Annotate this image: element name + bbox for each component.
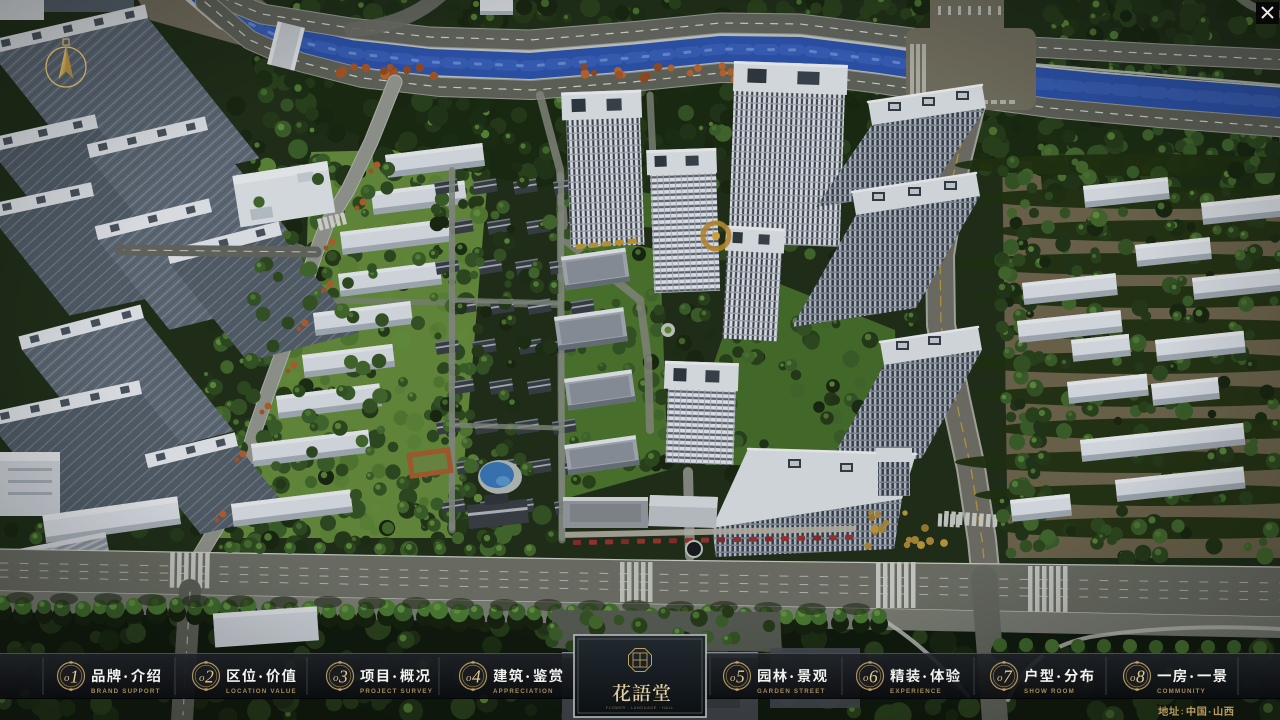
svg-text:4: 4 [472, 667, 481, 687]
svg-text:FLOWER · LANGUAGE · HALL: FLOWER · LANGUAGE · HALL [606, 706, 674, 710]
svg-text:APPRECIATION: APPRECIATION [493, 688, 554, 695]
svg-text:7: 7 [1003, 667, 1013, 687]
svg-text:PROJECT SURVEY: PROJECT SURVEY [360, 688, 433, 695]
svg-text:SHOW ROOM: SHOW ROOM [1024, 688, 1075, 695]
svg-text:6: 6 [869, 667, 878, 687]
svg-text:BRAND SUPPORT: BRAND SUPPORT [91, 688, 161, 695]
svg-text:GARDEN STREET: GARDEN STREET [757, 688, 826, 695]
svg-text:EXPERIENCE: EXPERIENCE [890, 688, 942, 695]
svg-text:1: 1 [70, 667, 79, 687]
svg-text:5: 5 [736, 667, 745, 687]
svg-text:3: 3 [338, 667, 348, 687]
svg-text:LOCATION VALUE: LOCATION VALUE [226, 688, 297, 695]
svg-text:COMMUNITY: COMMUNITY [1157, 688, 1206, 695]
svg-text:2: 2 [205, 667, 214, 687]
svg-text:8: 8 [1136, 667, 1145, 687]
